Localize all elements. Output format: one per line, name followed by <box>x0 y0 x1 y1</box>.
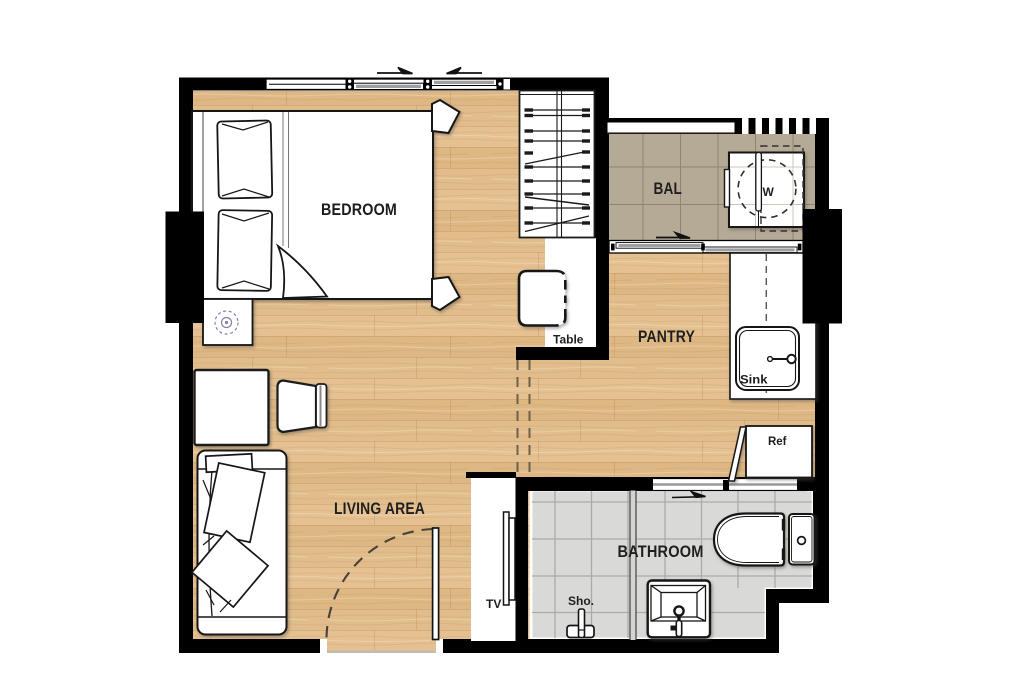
svg-text:Ref: Ref <box>768 434 787 448</box>
svg-text:PANTRY: PANTRY <box>638 328 695 346</box>
svg-text:Sho.: Sho. <box>568 594 594 608</box>
svg-text:LIVING AREA: LIVING AREA <box>334 500 425 518</box>
svg-text:TV: TV <box>486 597 501 611</box>
svg-text:BAL: BAL <box>654 180 683 198</box>
svg-text:Sink: Sink <box>740 373 768 387</box>
svg-text:Table: Table <box>553 333 584 347</box>
svg-text:W: W <box>763 185 775 199</box>
svg-text:BEDROOM: BEDROOM <box>321 201 397 219</box>
svg-text:BATHROOM: BATHROOM <box>618 543 704 561</box>
